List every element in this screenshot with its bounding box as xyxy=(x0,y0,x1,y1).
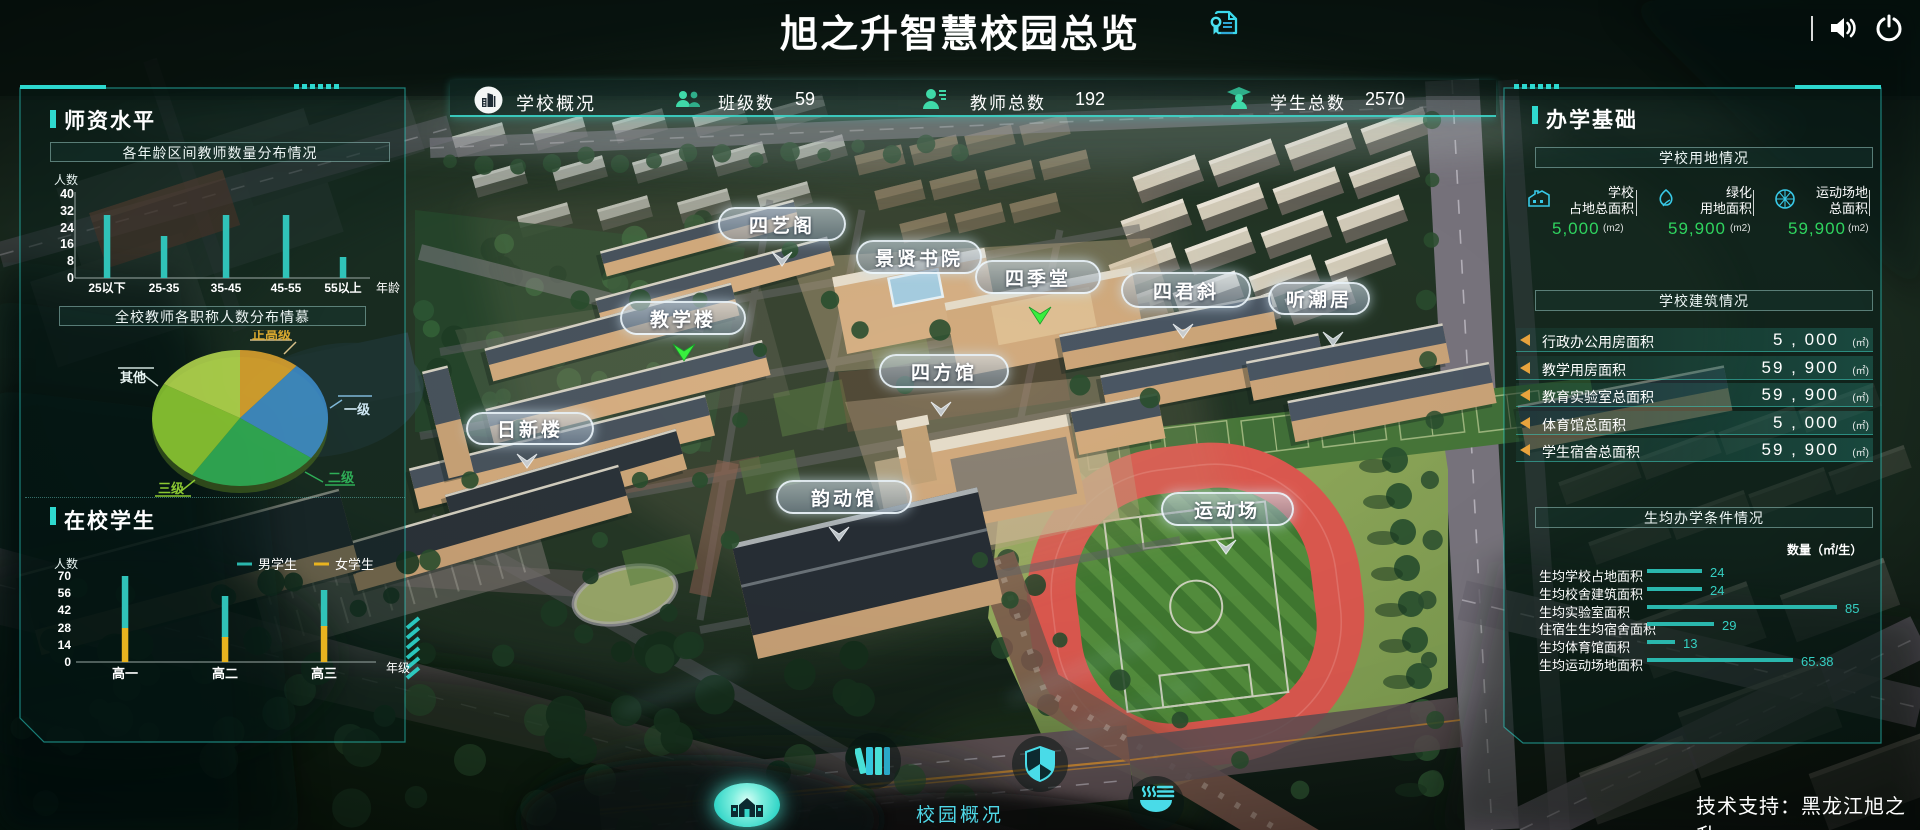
svg-text:56: 56 xyxy=(58,586,72,600)
svg-text:男学生: 男学生 xyxy=(258,557,297,572)
svg-text:一级: 一级 xyxy=(344,402,371,417)
svg-text:其他: 其他 xyxy=(120,370,146,385)
svg-text:高一: 高一 xyxy=(112,666,138,681)
svg-text:42: 42 xyxy=(58,603,72,617)
svg-text:正高级: 正高级 xyxy=(252,330,292,342)
svg-text:40: 40 xyxy=(60,187,74,201)
svg-text:人数: 人数 xyxy=(54,172,78,187)
svg-text:14: 14 xyxy=(58,638,72,652)
svg-text:70: 70 xyxy=(58,569,72,583)
svg-text:16: 16 xyxy=(60,237,74,251)
svg-text:年龄: 年龄 xyxy=(376,281,400,295)
svg-text:0: 0 xyxy=(67,271,74,285)
svg-text:55以上: 55以上 xyxy=(324,280,361,295)
svg-text:32: 32 xyxy=(60,204,74,218)
svg-text:45-55: 45-55 xyxy=(271,281,302,295)
svg-text:25-35: 25-35 xyxy=(149,281,180,295)
svg-text:25以下: 25以下 xyxy=(88,281,125,295)
svg-text:8: 8 xyxy=(67,254,74,268)
svg-text:女学生: 女学生 xyxy=(335,557,374,572)
svg-text:二级: 二级 xyxy=(328,470,355,485)
svg-text:年级: 年级 xyxy=(386,661,410,675)
svg-text:三级: 三级 xyxy=(158,481,185,496)
svg-text:0: 0 xyxy=(64,655,71,669)
svg-text:24: 24 xyxy=(60,221,74,235)
svg-text:高三: 高三 xyxy=(311,666,337,681)
svg-text:高二: 高二 xyxy=(212,666,238,681)
svg-text:28: 28 xyxy=(58,621,72,635)
svg-text:35-45: 35-45 xyxy=(211,281,242,295)
